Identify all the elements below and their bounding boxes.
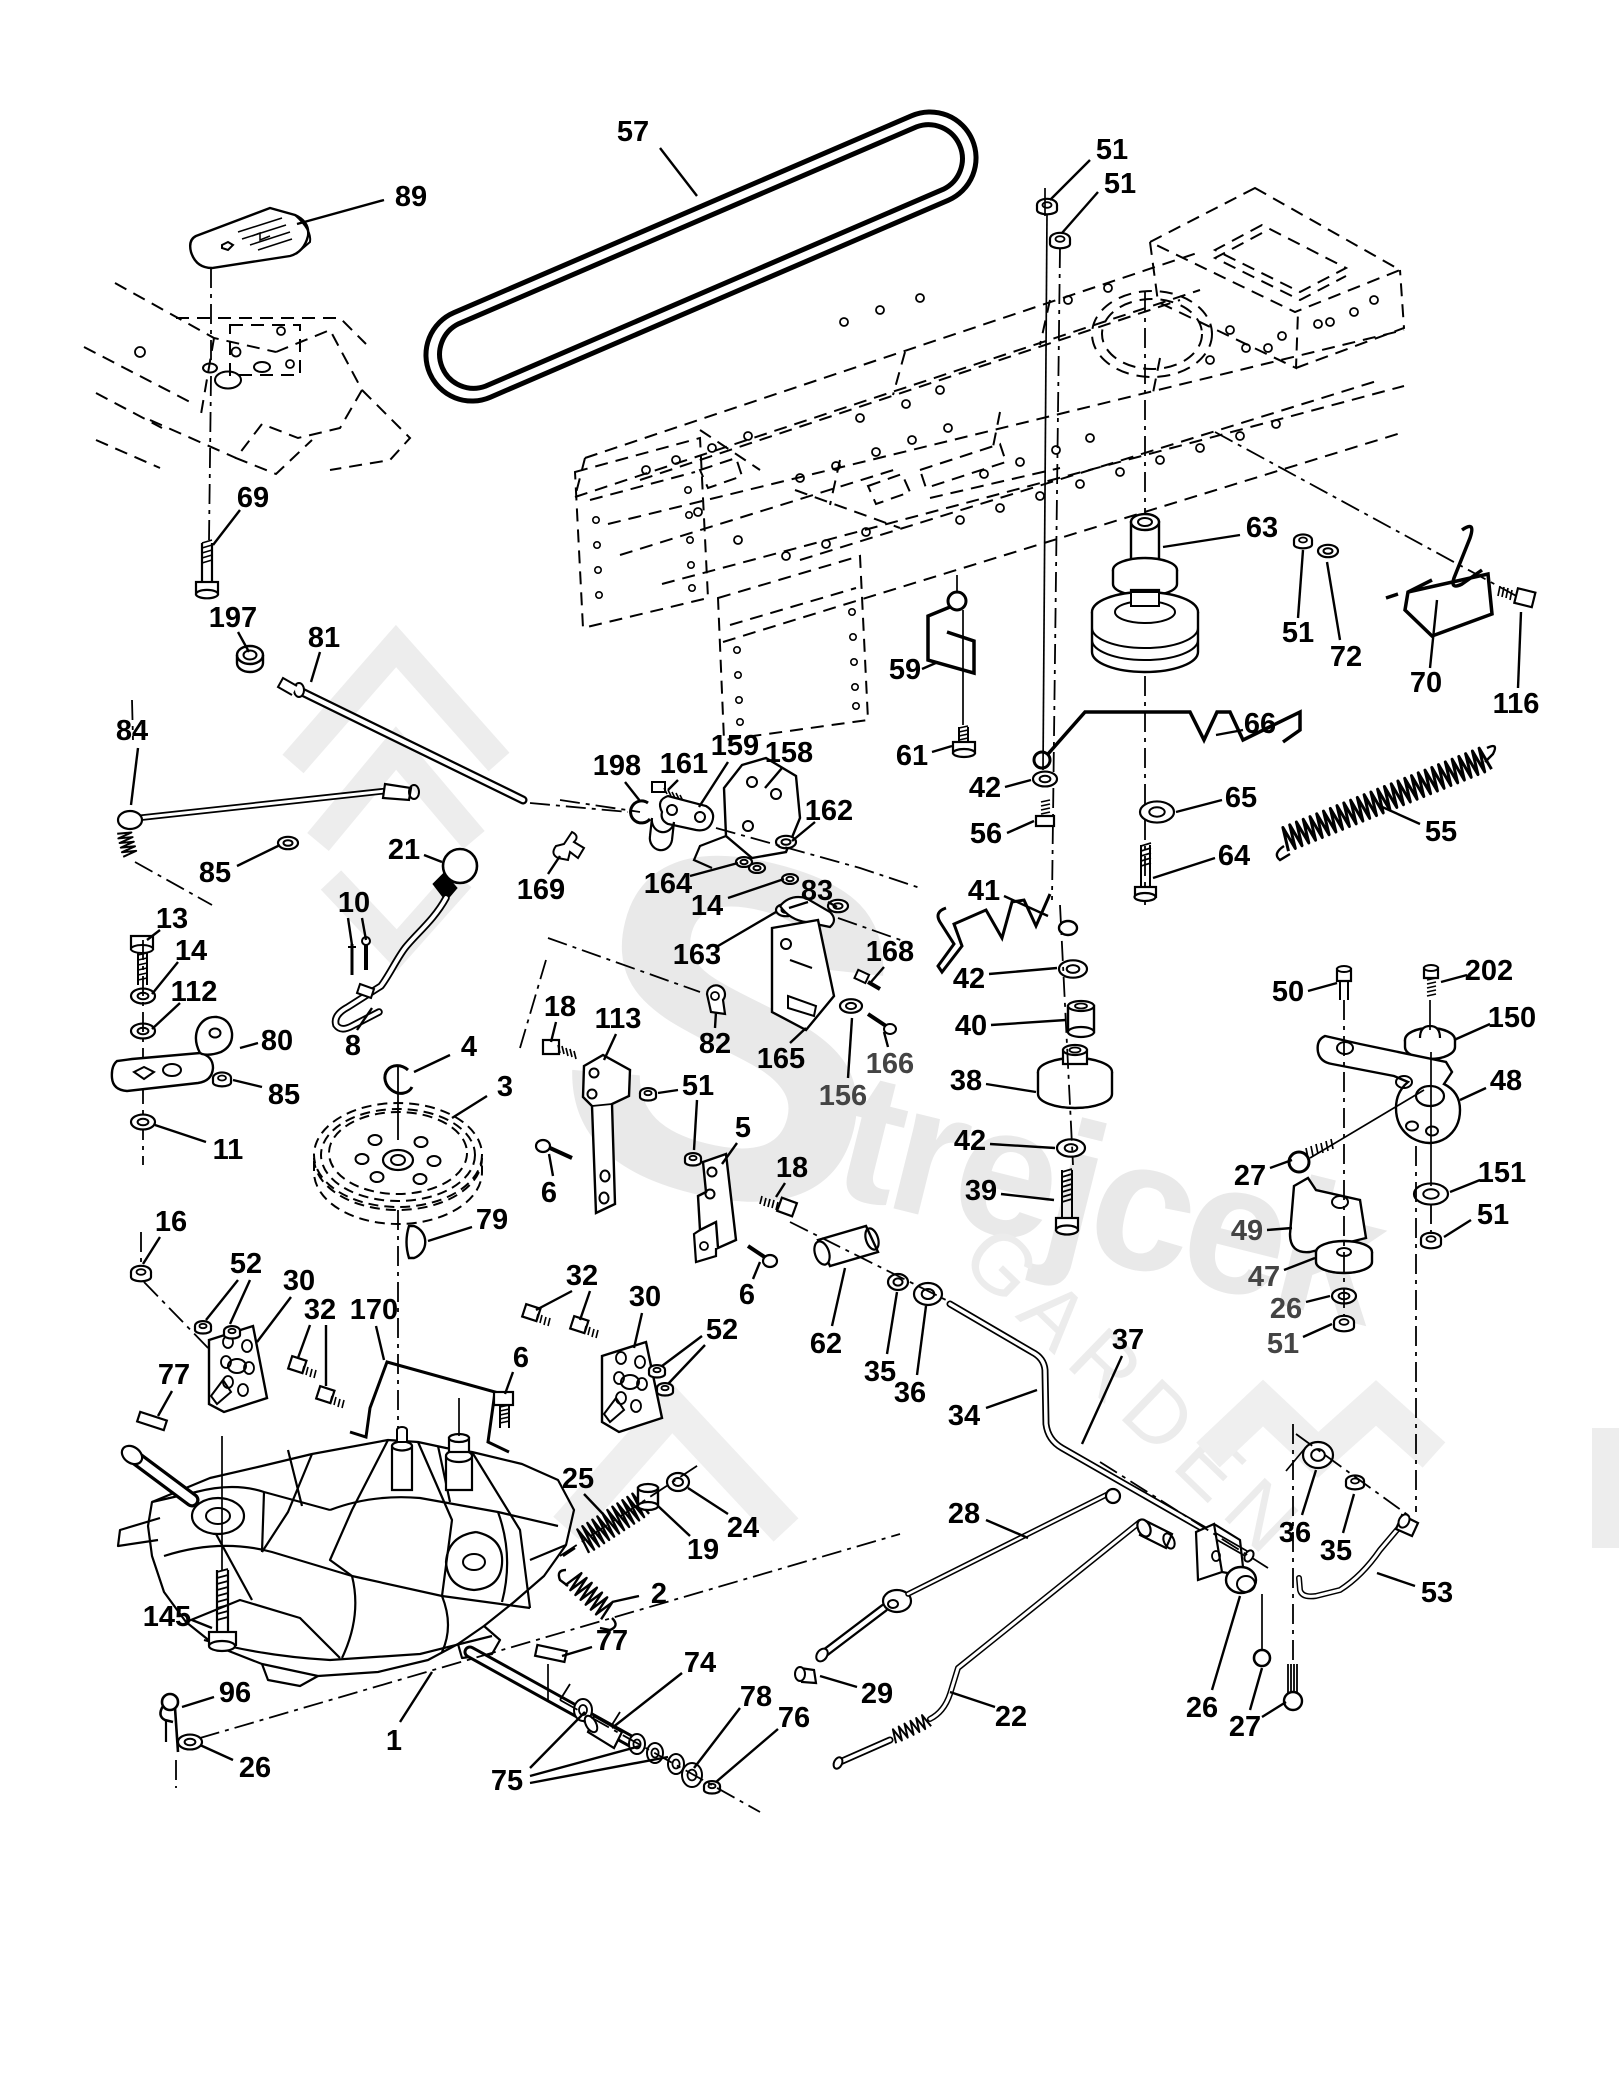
svg-text:85: 85: [199, 857, 231, 889]
svg-text:30: 30: [283, 1265, 315, 1297]
svg-text:6: 6: [513, 1342, 529, 1374]
svg-text:165: 165: [757, 1043, 805, 1075]
svg-text:26: 26: [239, 1752, 271, 1784]
svg-text:27: 27: [1229, 1711, 1261, 1743]
svg-text:75: 75: [491, 1765, 523, 1797]
svg-text:10: 10: [338, 887, 370, 919]
svg-text:32: 32: [304, 1294, 336, 1326]
svg-text:168: 168: [866, 936, 914, 968]
svg-text:51: 51: [1267, 1328, 1299, 1360]
svg-text:40: 40: [955, 1010, 987, 1042]
svg-text:65: 65: [1225, 782, 1257, 814]
svg-text:158: 158: [765, 737, 813, 769]
svg-text:166: 166: [866, 1048, 914, 1080]
svg-text:8: 8: [345, 1030, 361, 1062]
svg-text:29: 29: [861, 1678, 893, 1710]
svg-text:55: 55: [1425, 816, 1457, 848]
svg-text:78: 78: [740, 1681, 772, 1713]
svg-text:116: 116: [1493, 688, 1540, 720]
svg-text:52: 52: [230, 1248, 262, 1280]
svg-text:63: 63: [1246, 512, 1278, 544]
svg-text:16: 16: [155, 1206, 187, 1238]
svg-text:49: 49: [1231, 1215, 1263, 1247]
svg-text:14: 14: [691, 890, 723, 922]
svg-text:28: 28: [948, 1498, 980, 1530]
svg-text:170: 170: [350, 1294, 398, 1326]
svg-text:24: 24: [727, 1512, 759, 1544]
svg-text:74: 74: [684, 1647, 716, 1679]
svg-text:198: 198: [593, 750, 641, 782]
svg-text:41: 41: [968, 875, 1000, 907]
svg-text:42: 42: [969, 772, 1001, 804]
svg-text:150: 150: [1488, 1002, 1536, 1034]
svg-text:34: 34: [948, 1400, 980, 1432]
svg-text:113: 113: [595, 1003, 642, 1035]
svg-text:2: 2: [651, 1578, 667, 1610]
svg-text:164: 164: [644, 868, 692, 900]
svg-text:13: 13: [156, 903, 188, 935]
svg-text:96: 96: [219, 1677, 251, 1709]
svg-text:6: 6: [541, 1177, 557, 1209]
svg-text:77: 77: [596, 1625, 628, 1657]
svg-text:25: 25: [562, 1463, 594, 1495]
svg-text:36: 36: [894, 1377, 926, 1409]
svg-text:4: 4: [461, 1031, 477, 1063]
svg-text:70: 70: [1410, 667, 1442, 699]
svg-text:27: 27: [1234, 1160, 1266, 1192]
svg-text:35: 35: [1320, 1535, 1352, 1567]
svg-text:81: 81: [308, 622, 340, 654]
svg-text:52: 52: [706, 1314, 738, 1346]
svg-text:35: 35: [864, 1356, 896, 1388]
svg-text:169: 169: [517, 874, 565, 906]
svg-text:22: 22: [995, 1701, 1027, 1733]
svg-text:57: 57: [617, 116, 649, 148]
svg-text:11: 11: [213, 1134, 244, 1166]
svg-text:159: 159: [711, 730, 759, 762]
svg-text:59: 59: [889, 654, 921, 686]
svg-text:156: 156: [819, 1080, 867, 1112]
svg-text:38: 38: [950, 1065, 982, 1097]
svg-text:39: 39: [965, 1175, 997, 1207]
svg-text:1: 1: [386, 1725, 402, 1757]
svg-text:79: 79: [476, 1204, 508, 1236]
svg-text:61: 61: [896, 740, 928, 772]
svg-text:42: 42: [953, 963, 985, 995]
svg-text:84: 84: [116, 715, 148, 747]
svg-text:197: 197: [209, 602, 257, 634]
svg-text:89: 89: [395, 181, 427, 213]
svg-text:202: 202: [1465, 955, 1513, 987]
svg-text:14: 14: [175, 935, 207, 967]
svg-text:47: 47: [1248, 1261, 1280, 1293]
svg-text:151: 151: [1478, 1157, 1526, 1189]
svg-text:26: 26: [1270, 1293, 1302, 1325]
svg-text:42: 42: [954, 1125, 986, 1157]
svg-text:19: 19: [687, 1534, 719, 1566]
svg-text:51: 51: [1477, 1199, 1509, 1231]
svg-text:80: 80: [261, 1025, 293, 1057]
svg-text:18: 18: [544, 991, 576, 1023]
svg-text:77: 77: [158, 1359, 190, 1391]
svg-text:6: 6: [739, 1279, 755, 1311]
svg-text:112: 112: [171, 976, 218, 1008]
svg-text:161: 161: [660, 748, 708, 780]
svg-text:53: 53: [1421, 1577, 1453, 1609]
svg-text:69: 69: [237, 482, 269, 514]
svg-text:51: 51: [1104, 168, 1136, 200]
svg-text:163: 163: [673, 939, 721, 971]
svg-text:51: 51: [1282, 617, 1314, 649]
svg-text:36: 36: [1279, 1517, 1311, 1549]
svg-text:162: 162: [805, 795, 853, 827]
svg-text:145: 145: [143, 1601, 191, 1633]
svg-text:51: 51: [1096, 134, 1128, 166]
svg-text:18: 18: [776, 1152, 808, 1184]
svg-text:66: 66: [1244, 708, 1276, 740]
svg-text:30: 30: [629, 1281, 661, 1313]
svg-text:32: 32: [566, 1260, 598, 1292]
svg-text:26: 26: [1186, 1692, 1218, 1724]
svg-text:64: 64: [1218, 840, 1250, 872]
svg-text:82: 82: [699, 1028, 731, 1060]
svg-text:76: 76: [778, 1702, 810, 1734]
svg-text:56: 56: [970, 818, 1002, 850]
svg-text:72: 72: [1330, 641, 1362, 673]
svg-text:48: 48: [1490, 1065, 1522, 1097]
svg-text:85: 85: [268, 1079, 300, 1111]
svg-text:51: 51: [682, 1070, 714, 1102]
svg-text:3: 3: [497, 1071, 513, 1103]
svg-text:50: 50: [1272, 976, 1304, 1008]
svg-text:5: 5: [735, 1112, 751, 1144]
svg-text:62: 62: [810, 1328, 842, 1360]
svg-text:37: 37: [1112, 1324, 1144, 1356]
svg-text:21: 21: [388, 834, 420, 866]
